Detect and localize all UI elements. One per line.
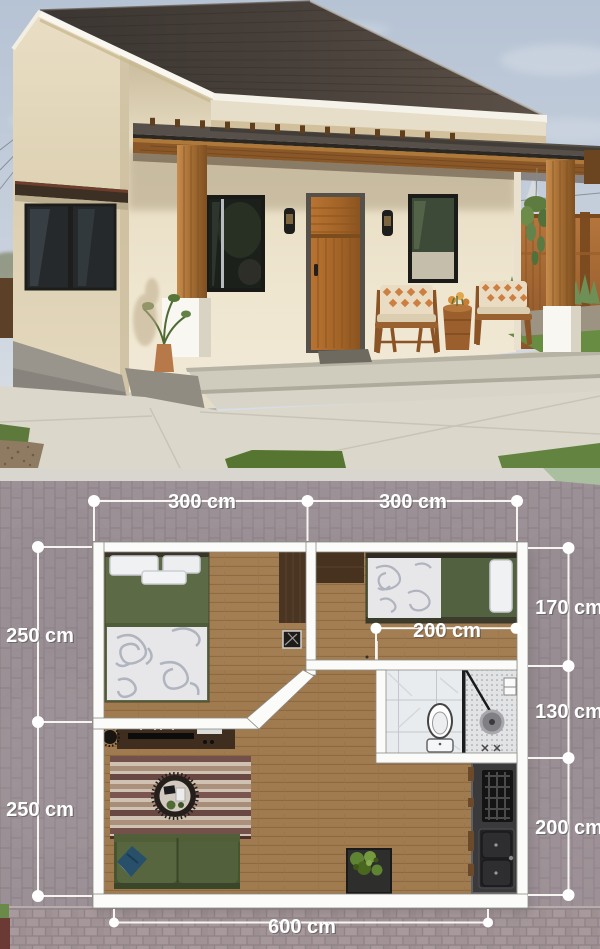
svg-text:300 cm: 300 cm [168, 491, 236, 513]
svg-text:250 cm: 250 cm [6, 625, 74, 647]
svg-text:200 cm: 200 cm [413, 620, 481, 642]
svg-text:600 cm: 600 cm [268, 916, 336, 938]
svg-text:200 cm: 200 cm [535, 817, 600, 839]
svg-text:170 cm: 170 cm [535, 597, 600, 619]
svg-text:130 cm: 130 cm [535, 701, 600, 723]
svg-text:250 cm: 250 cm [6, 799, 74, 821]
svg-text:300 cm: 300 cm [379, 491, 447, 513]
